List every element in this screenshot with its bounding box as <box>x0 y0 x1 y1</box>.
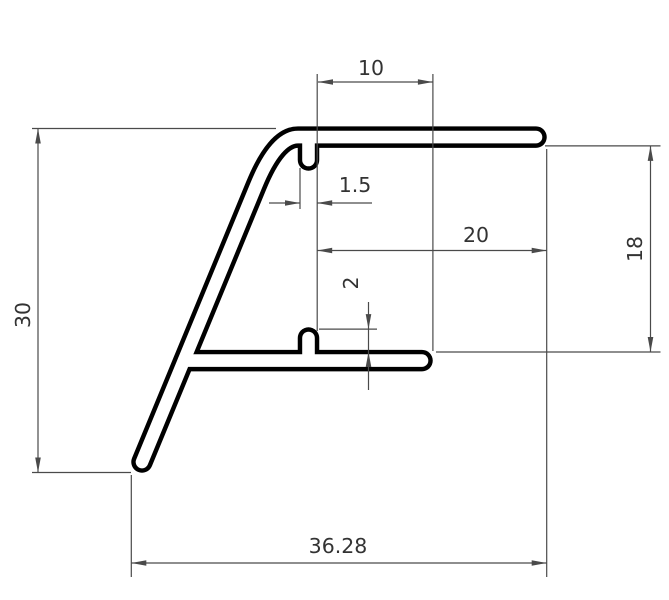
dimension-label: 36.28 <box>309 534 368 558</box>
dimension-36.28: 36.28 <box>131 475 546 577</box>
dimension-1.5: 1.5 <box>269 168 372 209</box>
dimension-label: 18 <box>623 236 647 262</box>
dimension-arrowhead <box>131 560 146 566</box>
dimension-arrowhead <box>366 314 372 329</box>
dimension-label: 20 <box>463 223 489 247</box>
dimension-30: 30 <box>11 129 276 473</box>
profile-drawing-svg: 101.5201830236.28 <box>0 0 669 600</box>
dimension-arrowhead <box>648 337 654 352</box>
dimension-label: 2 <box>339 276 363 289</box>
dimension-arrowhead <box>318 79 333 85</box>
technical-drawing-page: 101.5201830236.28 <box>0 0 669 600</box>
dimension-18: 18 <box>436 146 661 352</box>
dimension-label: 10 <box>358 56 384 80</box>
dimension-arrowhead <box>418 79 433 85</box>
dimension-arrowhead <box>317 248 332 254</box>
dimension-arrowhead <box>285 200 300 206</box>
dimension-label: 30 <box>11 302 35 328</box>
dimension-2: 2 <box>319 276 377 390</box>
dimension-arrowhead <box>35 129 41 144</box>
dimension-arrowhead <box>648 146 654 161</box>
dimension-arrowhead <box>532 560 547 566</box>
dimension-label: 1.5 <box>339 173 372 197</box>
dimension-arrowhead <box>532 248 547 254</box>
dimension-arrowhead <box>317 200 332 206</box>
dimension-arrowhead <box>35 458 41 473</box>
